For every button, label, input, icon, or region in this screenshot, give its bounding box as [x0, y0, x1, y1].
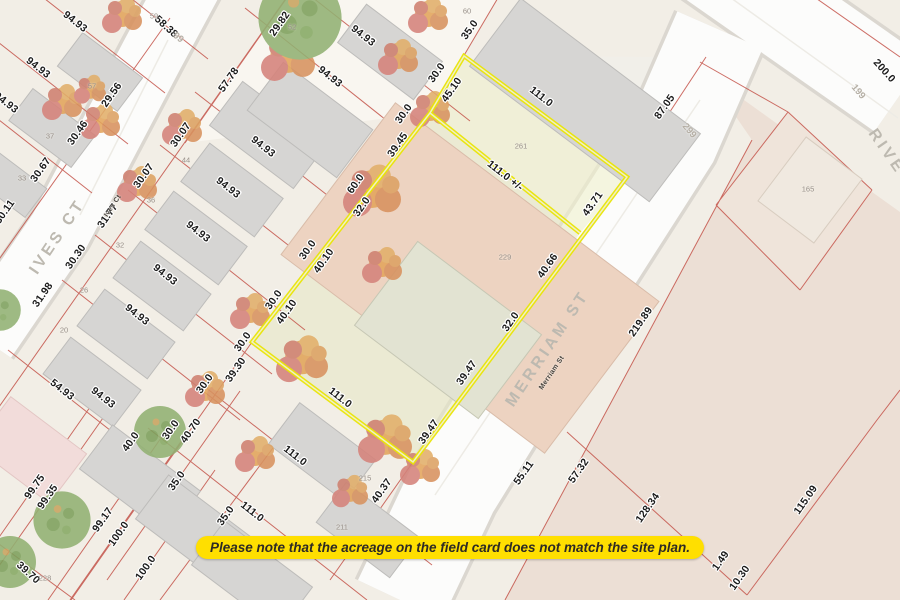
dimension-label: 40.0: [121, 430, 142, 453]
dimension-label: 94.93: [123, 302, 151, 327]
dimension-label: 57.32: [567, 457, 591, 485]
dimension-label: 30.46: [66, 119, 90, 147]
dimension-label: 30.0: [427, 61, 448, 84]
dimension-label: 115.09: [792, 484, 819, 517]
dimension-label: 57.78: [217, 66, 241, 94]
parcel-map-viewport[interactable]: 94.9394.9394.9358.3829.5630.4630.6730.11…: [0, 0, 900, 600]
dimension-label: 43.71: [581, 190, 605, 218]
dimension-label: 30.11: [0, 198, 17, 226]
house-number-label: 37: [46, 132, 54, 140]
dimension-label: 111.0 +/-: [485, 159, 525, 193]
dimension-label: 31.98: [31, 281, 55, 309]
dimension-label: 111.0: [281, 444, 308, 468]
notice-banner: Please note that the acreage on the fiel…: [196, 536, 704, 559]
dimension-label: 111.0: [238, 500, 265, 524]
dimension-label: 40.10: [312, 247, 336, 275]
dimension-label: 94.93: [89, 385, 117, 410]
dimension-label: 94.93: [349, 23, 377, 48]
dimension-label: 60.0: [346, 172, 367, 195]
dimension-label: 1.49: [711, 549, 732, 572]
dimension-label: 35.0: [216, 504, 237, 527]
house-number-label: 33: [18, 174, 26, 182]
dimension-label: 30.0: [264, 288, 285, 311]
dimension-label: 100.0: [134, 554, 158, 582]
dimension-label: 94.93: [0, 90, 20, 115]
dimension-label: 30.07: [132, 162, 156, 190]
house-number-label: 261: [515, 142, 528, 150]
house-number-label: 44: [182, 156, 190, 164]
street-name-label: IVES CT: [27, 197, 89, 278]
dimension-label: 99.35: [36, 483, 60, 511]
dimension-label: 40.10: [275, 298, 299, 326]
street-name-minor-label: Merriam St: [538, 355, 566, 391]
dimension-label: 30.0: [298, 238, 319, 261]
house-number-label: 215: [359, 474, 372, 482]
dimension-label: 94.93: [214, 175, 242, 200]
dimension-label: 94.93: [316, 64, 344, 89]
dimension-label: 94.93: [151, 262, 179, 287]
street-name-minor-label: Ives Ct: [103, 194, 123, 219]
road-address-label: 99: [171, 31, 185, 45]
house-number-label: 211: [336, 523, 348, 531]
dimension-label: 39.45: [386, 131, 410, 159]
dimension-label: 30.30: [64, 243, 88, 271]
dimension-label: 35.0: [167, 469, 188, 492]
map-labels-layer: 94.9394.9394.9358.3829.5630.4630.6730.11…: [0, 0, 900, 600]
dimension-label: 30.0: [394, 102, 415, 125]
dimension-label: 45.10: [440, 76, 464, 104]
dimension-label: 40.66: [536, 252, 560, 280]
dimension-label: 87.05: [653, 93, 677, 121]
dimension-label: 54.93: [48, 377, 76, 402]
dimension-label: 29.56: [100, 81, 124, 109]
dimension-label: 100.0: [107, 520, 131, 548]
dimension-label: 94.93: [24, 55, 52, 80]
dimension-label: 31.77: [96, 202, 120, 230]
dimension-label: 39.47: [417, 418, 441, 446]
dimension-label: 99.17: [91, 506, 115, 534]
dimension-label: 94.93: [249, 134, 277, 159]
dimension-label: 111.0: [527, 85, 554, 109]
dimension-label: 39.70: [14, 560, 41, 586]
dimension-label: 30.0: [195, 372, 216, 395]
dimension-label: 35.0: [460, 18, 481, 41]
dimension-label: 30.0: [161, 418, 182, 441]
dimension-label: 200.0: [871, 57, 897, 84]
dimension-label: 58.38: [152, 14, 179, 40]
dimension-label: 40.70: [179, 417, 203, 445]
dimension-label: 29.82: [268, 10, 292, 38]
dimension-label: 32.0: [352, 195, 373, 218]
road-address-label: 199: [849, 83, 866, 101]
notice-banner-text: Please note that the acreage on the fiel…: [210, 540, 690, 555]
house-number-label: 165: [802, 185, 815, 193]
house-number-label: 228: [39, 574, 52, 582]
dimension-label: 94.93: [184, 219, 212, 244]
dimension-label: 40.37: [370, 477, 394, 505]
house-number-label: 36: [147, 196, 155, 204]
dimension-label: 10.30: [728, 564, 752, 592]
dimension-label: 30.0: [233, 330, 254, 353]
dimension-label: 39.30: [224, 356, 248, 384]
house-number-label: 20: [60, 326, 68, 334]
road-address-label: 299: [680, 122, 697, 140]
street-name-label: RIVE: [865, 126, 900, 177]
dimension-label: 99.75: [23, 473, 47, 501]
dimension-label: 94.93: [61, 9, 89, 34]
house-number-label: 52: [288, 23, 296, 31]
dimension-label: 39.47: [455, 359, 479, 387]
dimension-label: 30.07: [169, 121, 193, 149]
house-number-label: 60: [463, 7, 471, 15]
house-number-label: 32: [116, 241, 124, 249]
dimension-label: 55.11: [512, 459, 536, 487]
dimension-label: 32.0: [501, 310, 522, 333]
house-number-label: 57: [88, 82, 96, 90]
house-number-label: 59: [150, 12, 158, 20]
dimension-label: 30.67: [29, 156, 53, 184]
house-number-label: 229: [499, 253, 512, 261]
dimension-label: 111.0: [326, 386, 353, 410]
house-number-label: 26: [80, 286, 88, 294]
dimension-label: 128.34: [634, 491, 662, 524]
street-name-label: MERRIAM ST: [503, 288, 592, 410]
dimension-label: 219.89: [627, 305, 655, 338]
